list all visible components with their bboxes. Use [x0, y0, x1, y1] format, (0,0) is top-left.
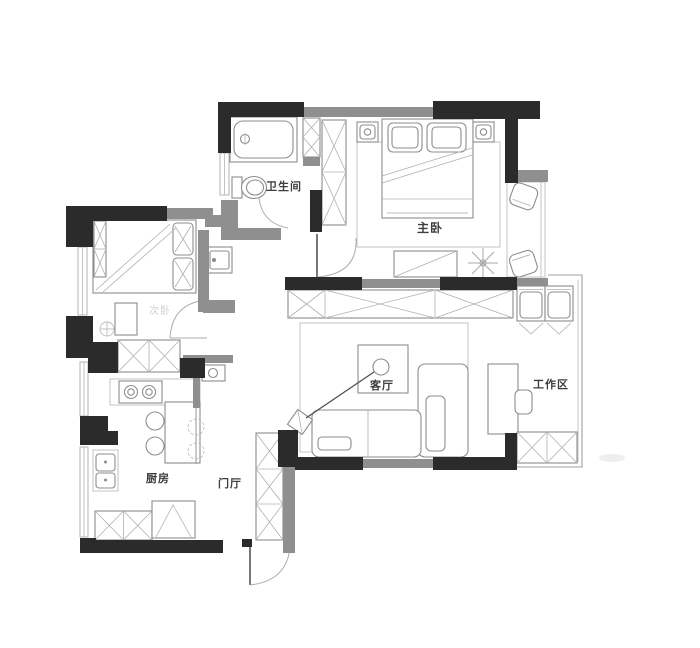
bathtub: [230, 117, 297, 162]
washing-machines: [517, 286, 573, 334]
kitchen-stove: [119, 381, 162, 403]
balcony: [507, 181, 545, 278]
nightstand-right: [473, 122, 494, 142]
niche-appliance: [202, 365, 225, 381]
master-door-swing: [317, 234, 356, 277]
floor-plan: 卫生间 主卧 次卧 客厅 工作区 厨房 门厅: [0, 0, 700, 648]
bathroom-door-swing: [254, 198, 288, 228]
room-label-bathroom: 卫生间: [266, 179, 302, 193]
nightstand-left: [357, 122, 378, 142]
master-bed: [382, 119, 473, 218]
room-label-kitchen: 厨房: [146, 471, 170, 485]
kitchen-sink: [93, 450, 118, 491]
window-second-bedroom: [78, 247, 87, 315]
bed-end-bench: [394, 251, 457, 277]
plant-icon: [468, 248, 498, 278]
work-area-cabinets: [517, 432, 577, 463]
floor-plan-drawing: 卫生间 主卧 次卧 客厅 工作区 厨房 门厅: [0, 0, 700, 648]
watermark-smudge: [599, 454, 625, 462]
room-label-living-room: 客厅: [369, 378, 394, 392]
second-bedroom-wardrobe: [118, 340, 180, 372]
flower-icon: [100, 322, 114, 336]
storage-cabinet-row: [288, 290, 513, 318]
room-label-entry-hall: 门厅: [218, 476, 242, 490]
divider-cabinet: [303, 118, 320, 157]
kitchen-island: [165, 402, 200, 463]
second-bedroom-desk: [115, 303, 137, 335]
washbasin: [207, 247, 232, 273]
kitchen-base-cabinets: [95, 511, 152, 540]
desk-chair: [515, 390, 532, 414]
window-kitchen-upper: [80, 362, 88, 416]
room-label-work-area: 工作区: [533, 377, 569, 391]
second-bed: [93, 220, 196, 293]
window-kitchen-lower: [80, 447, 88, 537]
work-desk: [488, 364, 518, 434]
fridge-cabinet: [152, 501, 195, 538]
toilet: [232, 177, 267, 199]
window-bathroom: [220, 153, 229, 195]
room-label-master-bedroom: 主卧: [417, 220, 443, 235]
room-label-second-bedroom: 次卧: [149, 304, 171, 317]
master-wardrobe: [322, 120, 346, 225]
